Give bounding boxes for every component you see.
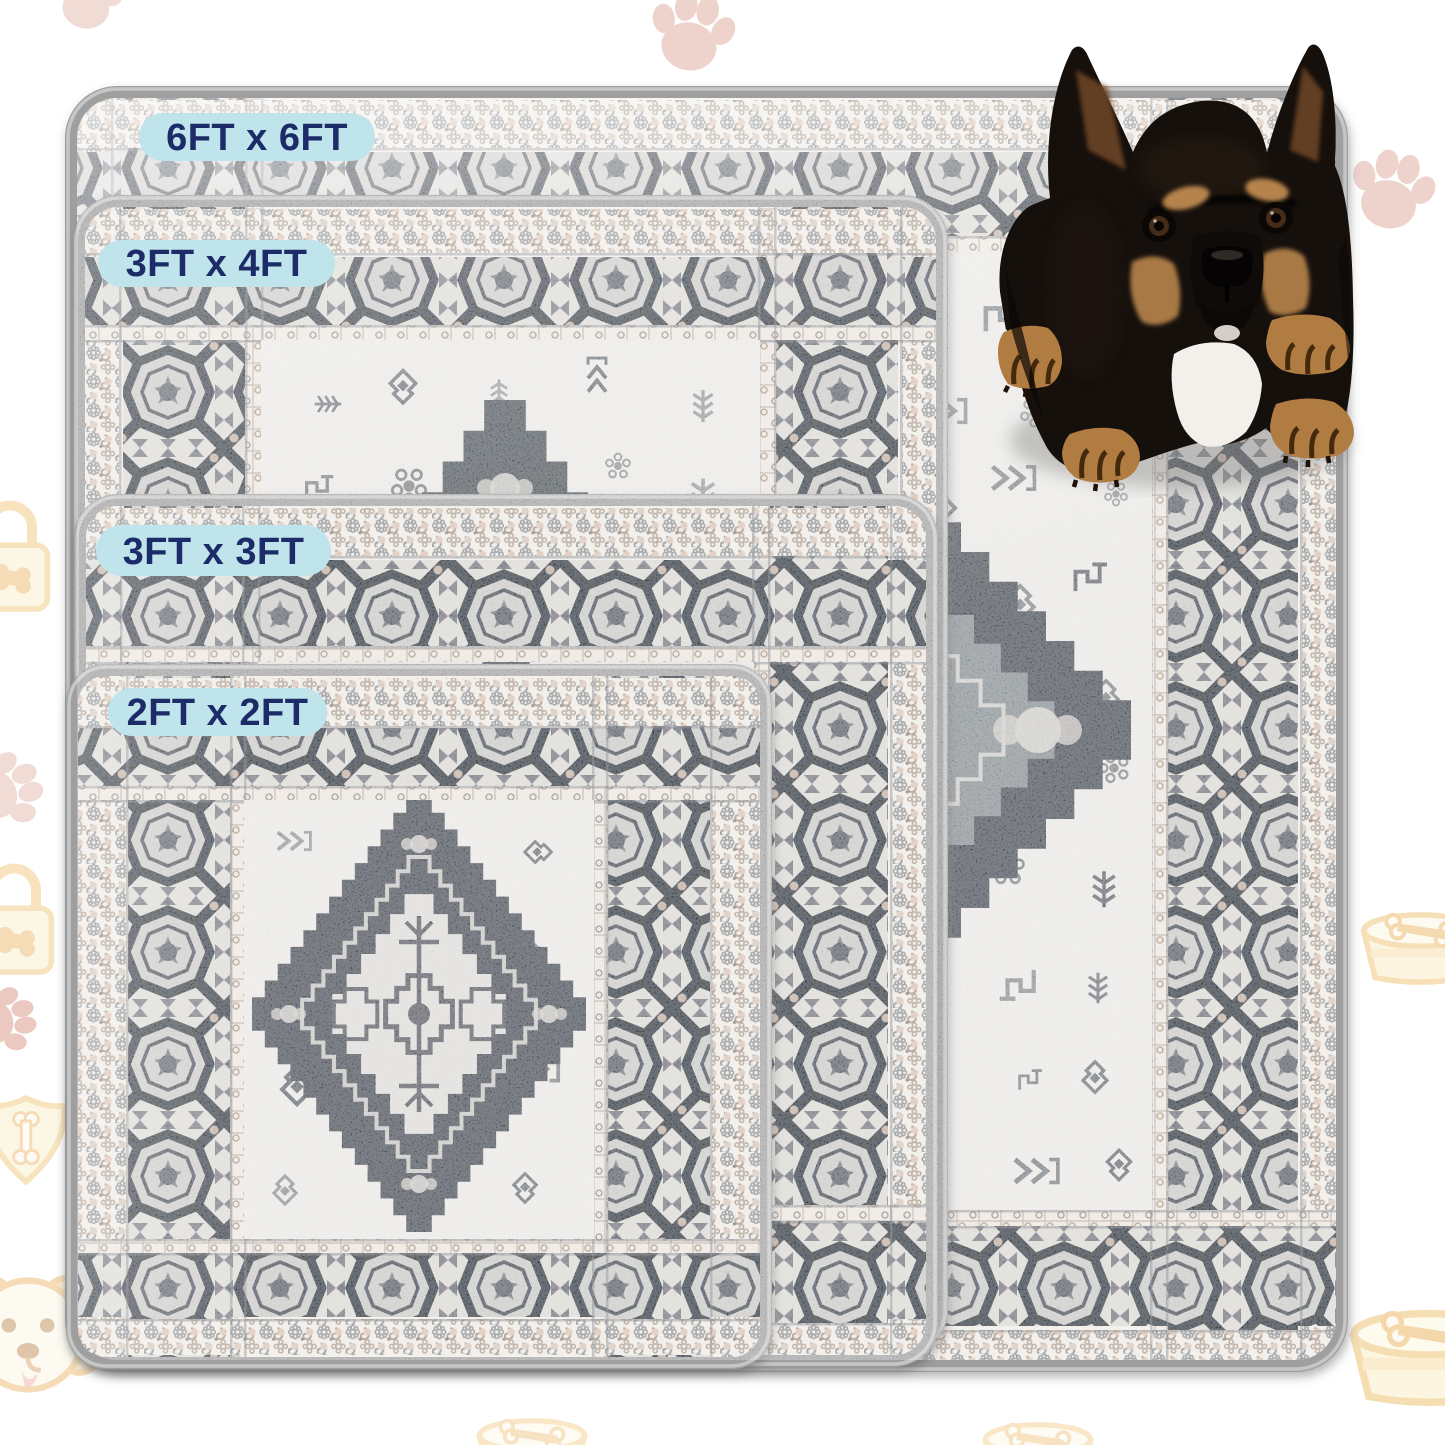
svg-text:3FT x 3FT: 3FT x 3FT — [123, 531, 305, 573]
svg-text:6FT x 6FT: 6FT x 6FT — [166, 117, 348, 159]
svg-text:2FT x 2FT: 2FT x 2FT — [127, 692, 309, 734]
svg-text:3FT x 4FT: 3FT x 4FT — [126, 243, 308, 285]
